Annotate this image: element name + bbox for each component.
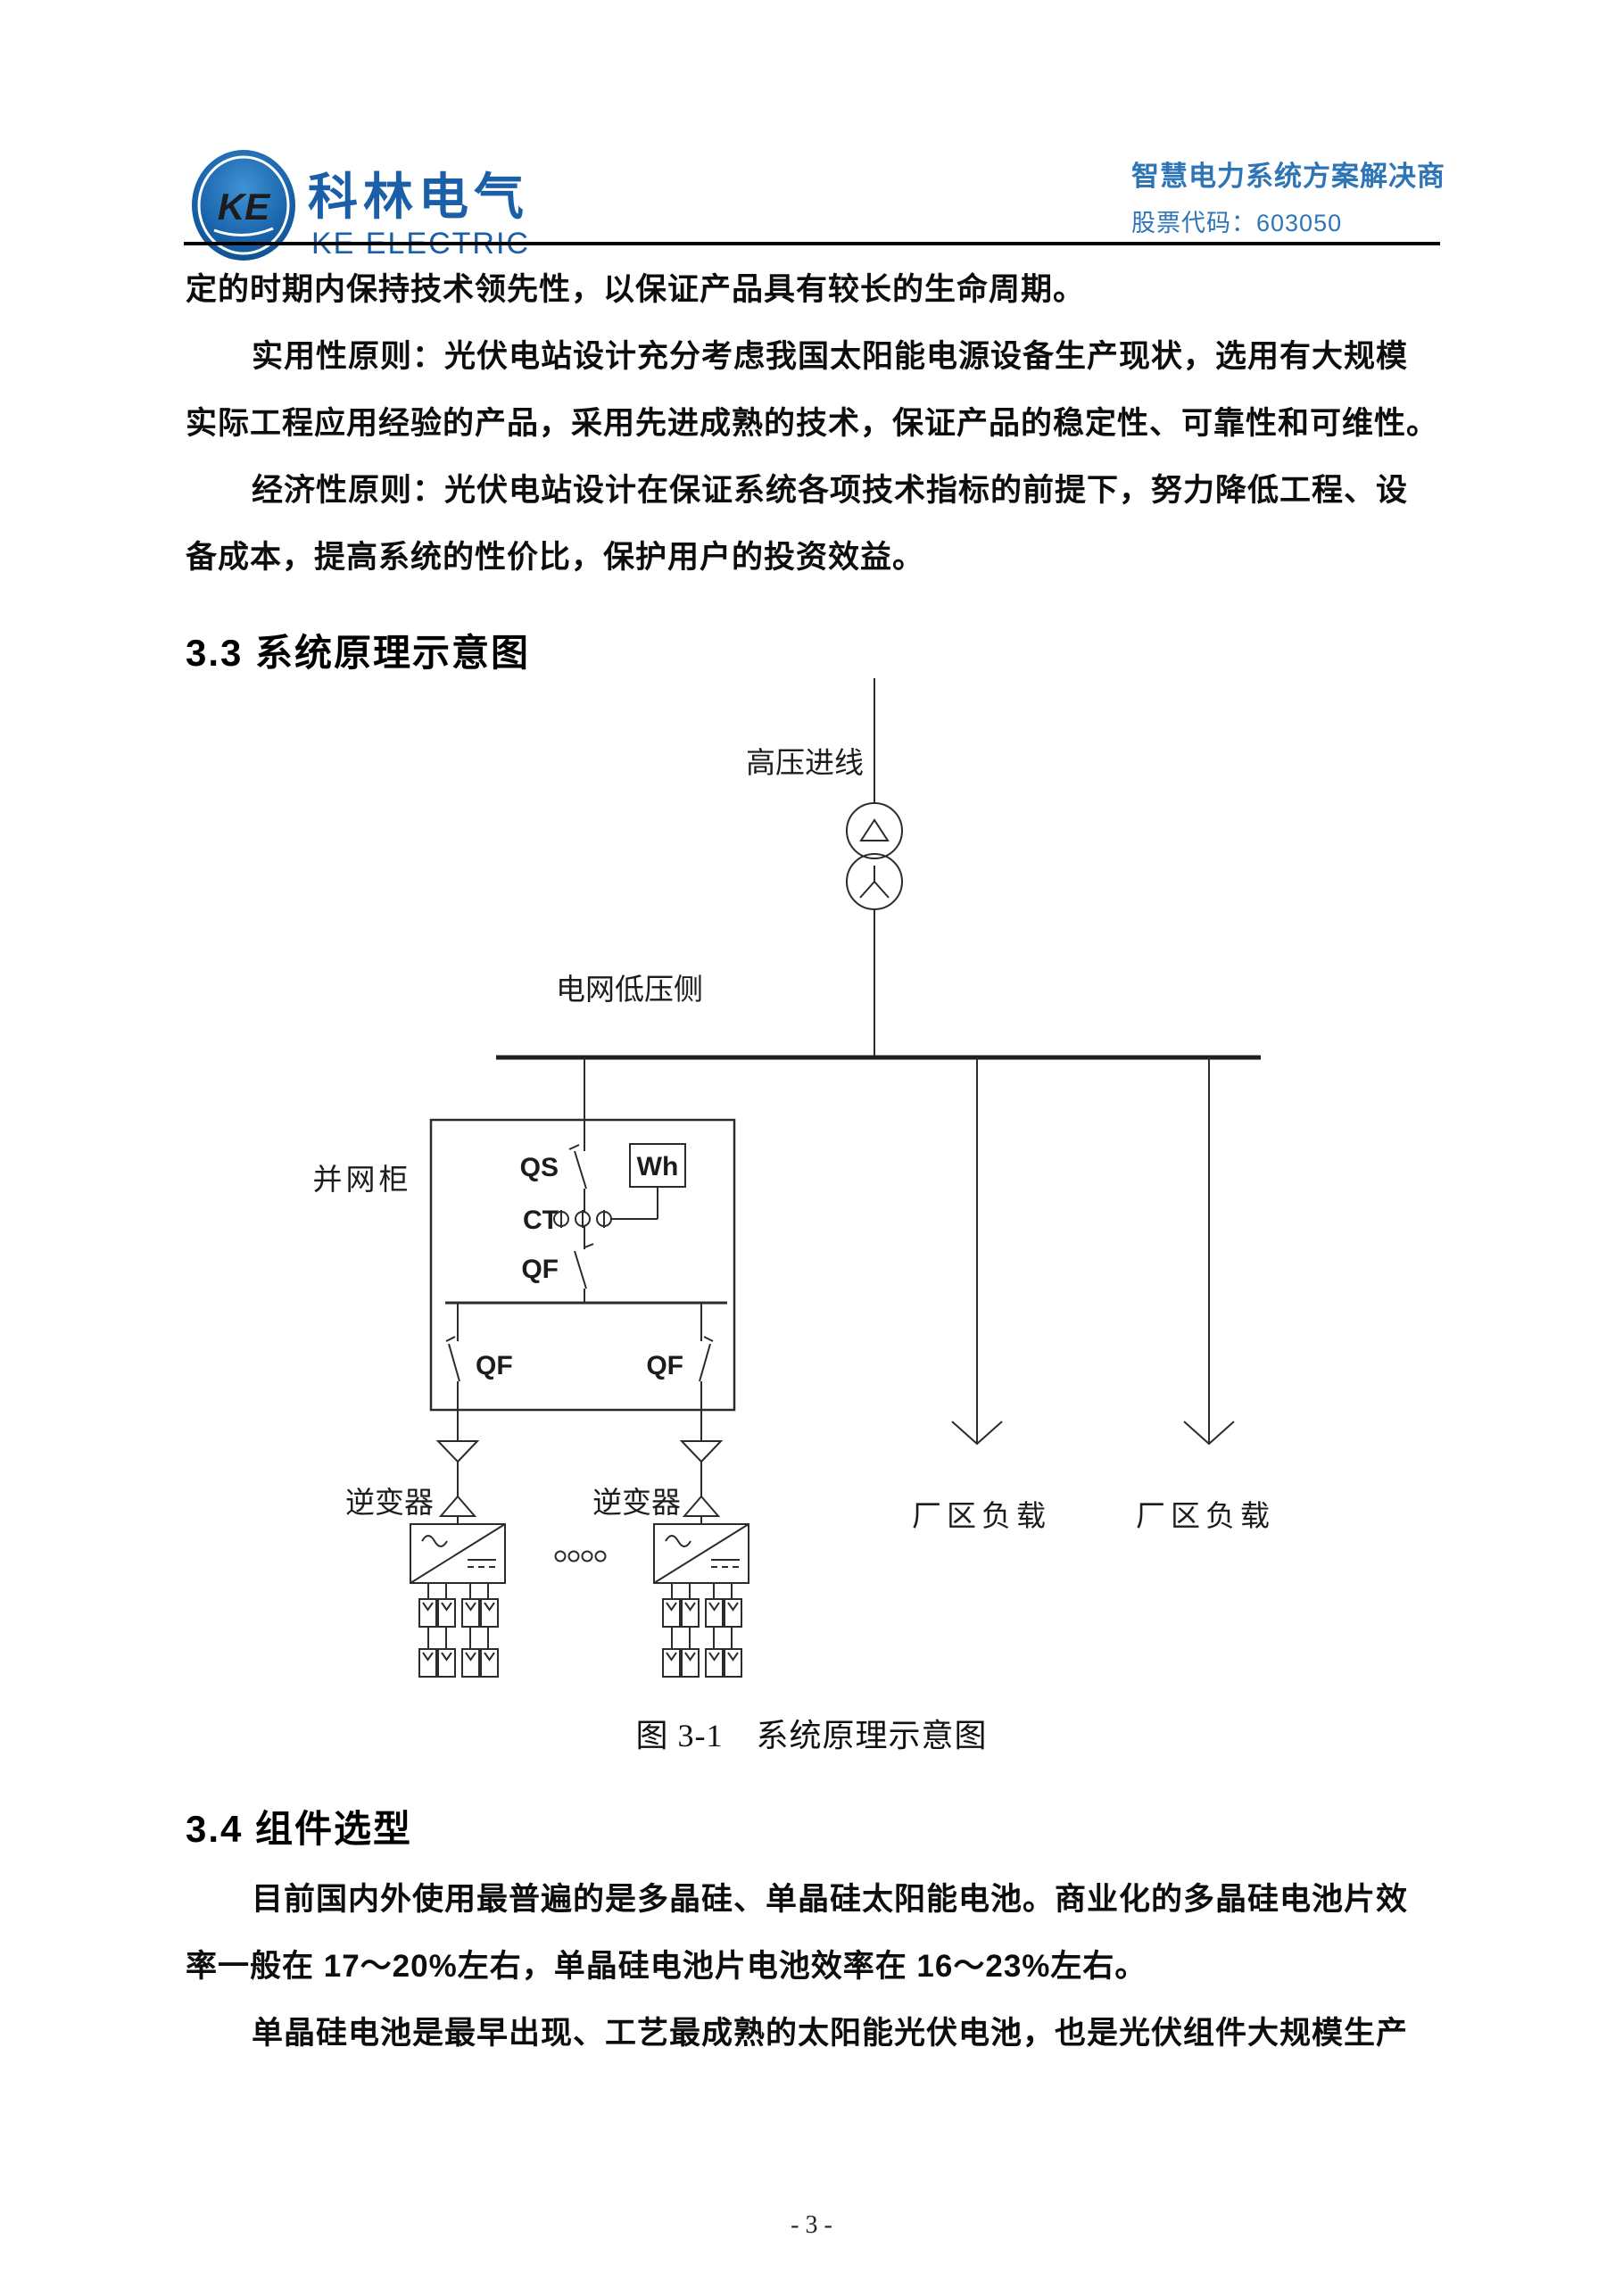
hv-incoming-line: 高压进线 xyxy=(746,678,874,803)
paragraph-line: 定的时期内保持技术领先性，以保证产品具有较长的生命周期。 xyxy=(186,264,1085,310)
pv-array-right-icon xyxy=(663,1583,741,1677)
qf-right-breaker-icon: QF xyxy=(646,1303,713,1441)
brand-name-cn: 科林电气 xyxy=(308,157,529,229)
ct-sensors-icon: CT xyxy=(523,1187,658,1235)
header-divider xyxy=(184,242,1440,245)
paragraph-line: 实际工程应用经验的产品，采用先进成熟的技术，保证产品的稳定性、可靠性和可维性。 xyxy=(186,398,1438,443)
qf-left-label: QF xyxy=(476,1351,513,1380)
load-left-label: 厂区负载 xyxy=(912,1500,1051,1533)
figure-caption: 图 3-1 系统原理示意图 xyxy=(0,1710,1623,1756)
grid-cabinet: 并网柜 QS CT Wh QF xyxy=(313,1057,735,1441)
hv-line-label: 高压进线 xyxy=(746,747,864,780)
qs-label: QS xyxy=(520,1153,559,1182)
qf-right-label: QF xyxy=(646,1351,683,1380)
inverter-right-box-icon xyxy=(654,1524,749,1583)
ct-label: CT xyxy=(523,1206,559,1235)
transformer-symbol-icon xyxy=(847,803,902,1057)
pv-array-left-icon xyxy=(419,1583,498,1677)
section-heading-3-4: 3.4 组件选型 xyxy=(186,1799,412,1853)
load-right-label: 厂区负载 xyxy=(1136,1500,1275,1533)
paragraph-line: 率一般在 17～20%左右，单晶硅电池片电池效率在 16～23%左右。 xyxy=(186,1941,1147,1986)
page-number: - 3 - xyxy=(0,2211,1623,2240)
paragraph-line: 单晶硅电池是最早出现、工艺最成熟的太阳能光伏电池，也是光伏组件大规模生产 xyxy=(252,2008,1408,2053)
paragraph-line: 实用性原则：光伏电站设计充分考虑我国太阳能电源设备生产现状，选用有大规模 xyxy=(252,331,1408,377)
load-feeder-left: 厂区负载 xyxy=(912,1057,1051,1533)
paragraph-line: 目前国内外使用最普遍的是多晶硅、单晶硅太阳能电池。商业化的多晶硅电池片效 xyxy=(252,1874,1408,1919)
inverter-branch-right: 逆变器 xyxy=(592,1441,749,1677)
wh-label: Wh xyxy=(637,1152,679,1181)
load-feeder-right: 厂区负载 xyxy=(1136,1057,1275,1533)
system-schematic-svg: 高压进线 电网低压侧 并网柜 QS CT xyxy=(294,660,1329,1731)
qf-main-breaker-icon: QF xyxy=(521,1244,593,1303)
qf-left-breaker-icon: QF xyxy=(446,1303,513,1441)
lv-side-label: 电网低压侧 xyxy=(556,974,703,1007)
system-schematic-figure: 高压进线 电网低压侧 并网柜 QS CT xyxy=(294,660,1329,1731)
header-tagline: 智慧电力系统方案解决商 xyxy=(1131,153,1445,194)
cabinet-label: 并网柜 xyxy=(313,1164,412,1197)
paragraph-line: 备成本，提高系统的性价比，保护用户的投资效益。 xyxy=(186,532,924,577)
inverter-left-label: 逆变器 xyxy=(345,1487,434,1520)
inverter-right-label: 逆变器 xyxy=(592,1487,681,1520)
header-stock-code: 股票代码：603050 xyxy=(1131,203,1342,238)
paragraph-line: 经济性原则：光伏电站设计在保证系统各项技术指标的前提下，努力降低工程、设 xyxy=(252,465,1408,510)
qf-label: QF xyxy=(521,1255,559,1284)
wh-meter: Wh xyxy=(630,1144,685,1187)
lv-busbar: 电网低压侧 xyxy=(496,974,1261,1057)
inverter-left-box-icon xyxy=(410,1524,505,1583)
more-inverters-ellipsis-icon xyxy=(556,1552,606,1562)
svg-text:KE: KE xyxy=(218,186,271,228)
document-page: { "header": { "logo_monogram": "KE", "br… xyxy=(0,0,1623,2296)
inverter-branch-left: 逆变器 xyxy=(345,1441,505,1677)
